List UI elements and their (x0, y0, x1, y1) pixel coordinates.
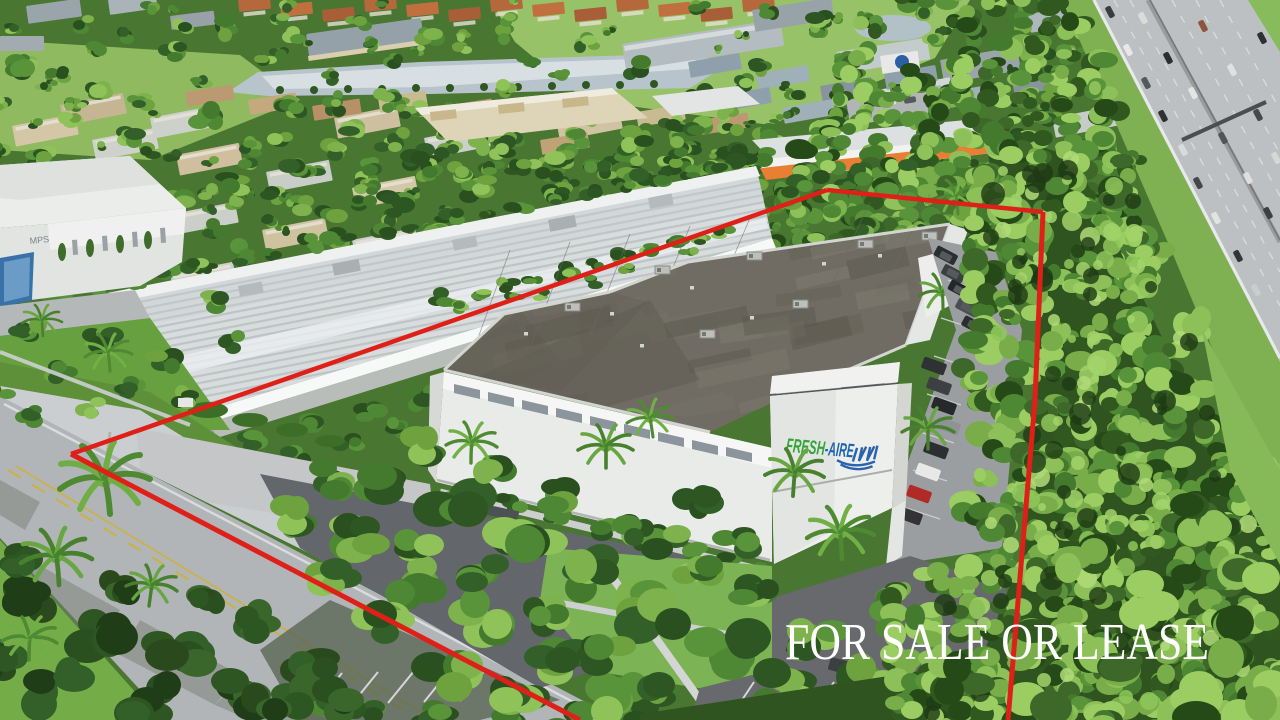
svg-text:FOR SALE OR LEASE: FOR SALE OR LEASE (785, 614, 1209, 671)
svg-text:-AIRE: -AIRE (824, 438, 855, 462)
svg-text:MPS: MPS (29, 234, 49, 246)
